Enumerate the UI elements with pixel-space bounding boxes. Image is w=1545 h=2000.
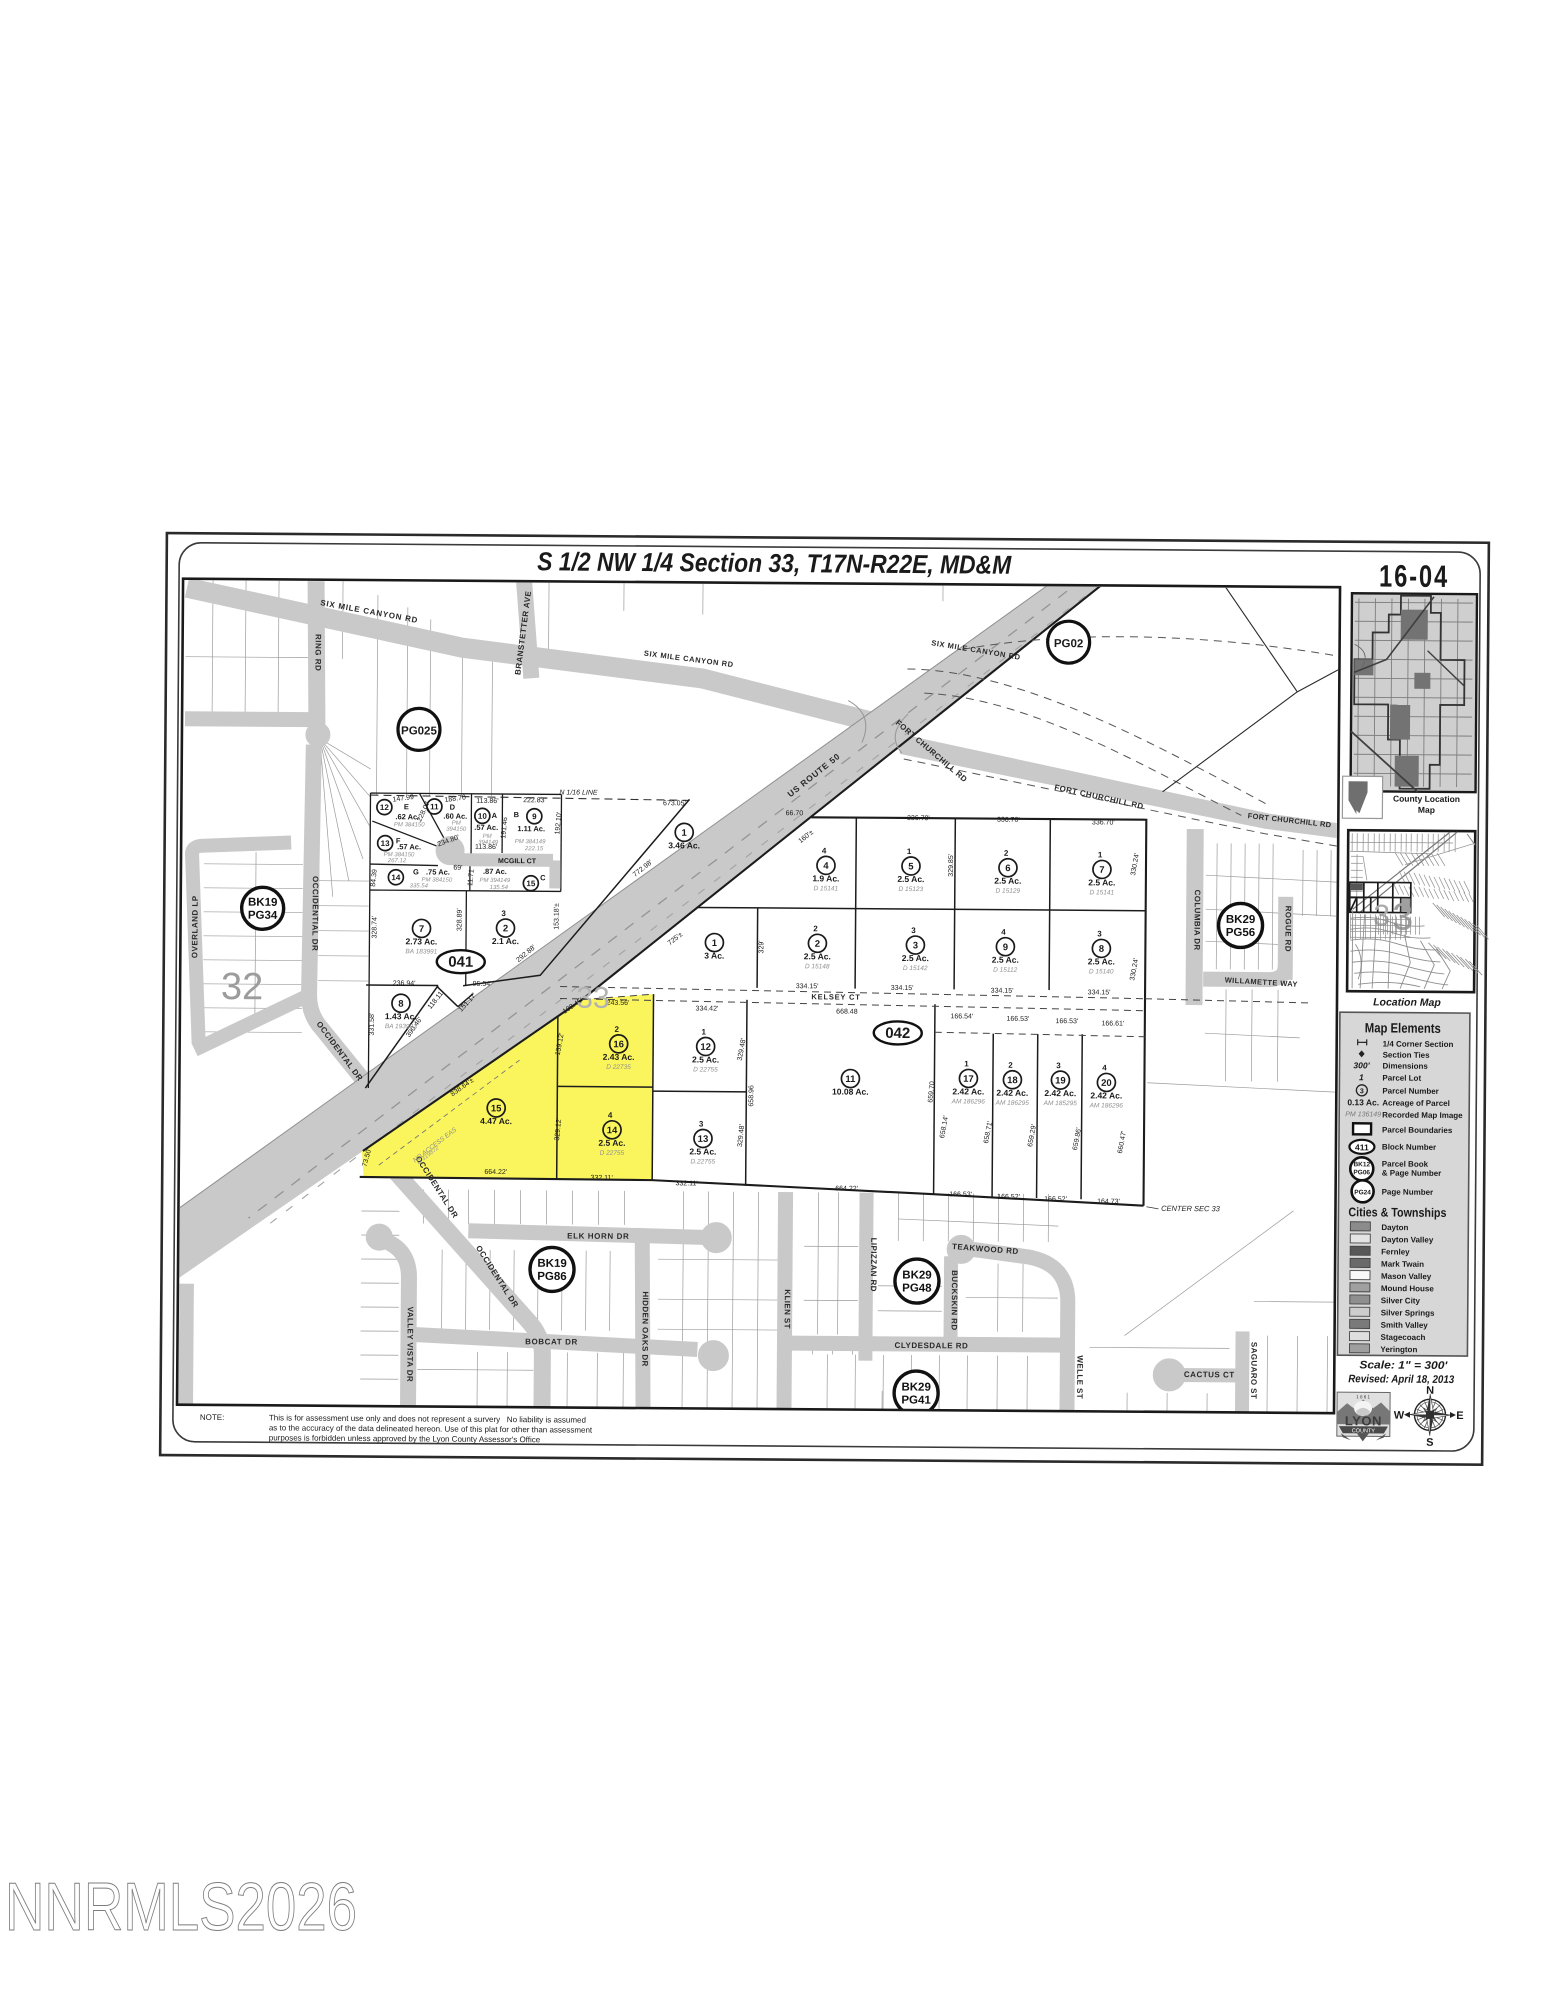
svg-text:BK19: BK19 [248, 897, 277, 909]
svg-text:8: 8 [398, 999, 403, 1010]
svg-text:2: 2 [503, 923, 508, 934]
svg-text:Location Map: Location Map [1373, 996, 1441, 1009]
svg-text:BK12: BK12 [1353, 1161, 1370, 1168]
svg-text:13: 13 [698, 1134, 709, 1145]
svg-text:334.42': 334.42' [696, 1005, 719, 1012]
svg-text:1: 1 [682, 828, 688, 839]
svg-text:335.54: 335.54 [410, 883, 429, 889]
svg-text:2.42 Ac.: 2.42 Ac. [1090, 1090, 1122, 1100]
svg-text:Section Ties: Section Ties [1383, 1050, 1431, 1059]
svg-text:Acreage of Parcel: Acreage of Parcel [1382, 1098, 1450, 1107]
svg-text:D 15129: D 15129 [995, 888, 1020, 895]
svg-text:2.42 Ac.: 2.42 Ac. [952, 1086, 984, 1096]
svg-text:Mason Valley: Mason Valley [1381, 1272, 1432, 1281]
svg-text:135.54: 135.54 [490, 885, 509, 891]
svg-text:1/4 Corner Section: 1/4 Corner Section [1383, 1039, 1454, 1049]
svg-text:1.9 Ac.: 1.9 Ac. [812, 873, 839, 883]
svg-text:Dimensions: Dimensions [1382, 1061, 1428, 1070]
svg-text:1.43 Ac.: 1.43 Ac. [385, 1011, 417, 1021]
svg-text:D 15123: D 15123 [898, 886, 923, 893]
svg-text:AM 186295: AM 186295 [995, 1100, 1030, 1107]
svg-text:3: 3 [1392, 897, 1413, 939]
svg-text:166.52': 166.52' [997, 1194, 1020, 1201]
svg-text:RING RD: RING RD [313, 634, 322, 671]
svg-text:329': 329' [758, 940, 765, 953]
svg-text:3: 3 [699, 1119, 704, 1128]
svg-text:D.22755: D.22755 [690, 1158, 715, 1165]
svg-text:13: 13 [381, 839, 391, 848]
svg-text:9: 9 [1003, 942, 1008, 953]
svg-text:3.46 Ac.: 3.46 Ac. [668, 840, 700, 850]
svg-text:334.15': 334.15' [796, 983, 819, 990]
svg-text:PG02: PG02 [1054, 638, 1084, 650]
svg-text:332.11': 332.11' [591, 1175, 613, 1182]
svg-text:328.74': 328.74' [371, 916, 378, 939]
svg-text:Fernley: Fernley [1381, 1247, 1410, 1256]
svg-text:E: E [404, 802, 409, 811]
svg-text:4: 4 [822, 846, 827, 855]
svg-text:HIDDEN OAKS DR: HIDDEN OAKS DR [640, 1291, 650, 1366]
svg-text:334.15': 334.15' [1088, 989, 1111, 996]
svg-text:Parcel Number: Parcel Number [1382, 1086, 1439, 1095]
svg-text:664.22': 664.22' [484, 1169, 507, 1176]
svg-text:7: 7 [1099, 865, 1104, 876]
svg-text:2: 2 [813, 924, 818, 933]
svg-text:10: 10 [478, 812, 488, 821]
svg-text:& Page Number: & Page Number [1382, 1168, 1442, 1177]
svg-text:Cities & Townships: Cities & Townships [1348, 1205, 1446, 1220]
svg-text:15: 15 [526, 879, 536, 888]
svg-text:2.5 Ac.: 2.5 Ac. [689, 1146, 716, 1156]
svg-text:3 Ac.: 3 Ac. [704, 951, 724, 961]
svg-text:PG06: PG06 [1353, 1169, 1370, 1176]
svg-text:166.53': 166.53' [1006, 1016, 1029, 1023]
svg-text:20: 20 [1101, 1078, 1112, 1089]
svg-text:69': 69' [453, 865, 462, 872]
svg-text:4.47 Ac.: 4.47 Ac. [480, 1116, 512, 1126]
svg-text:17: 17 [963, 1074, 974, 1085]
svg-text:D 15141: D 15141 [1089, 889, 1114, 896]
svg-text:PG86: PG86 [537, 1271, 567, 1283]
svg-text:1: 1 [702, 1027, 707, 1036]
svg-text:334.15': 334.15' [891, 985, 914, 992]
svg-text:D 15148: D 15148 [805, 963, 830, 970]
svg-text:11: 11 [430, 802, 439, 811]
svg-text:8: 8 [1099, 944, 1104, 955]
svg-text:394149: 394149 [478, 840, 499, 846]
svg-text:11: 11 [845, 1074, 856, 1085]
svg-text:166.54': 166.54' [950, 1013, 973, 1020]
svg-text:18: 18 [1007, 1075, 1018, 1086]
svg-text:113.86': 113.86' [476, 798, 498, 805]
svg-text:14: 14 [391, 873, 401, 882]
svg-text:332.11': 332.11' [676, 1180, 698, 1187]
svg-text:.57 Ac.: .57 Ac. [474, 823, 498, 832]
svg-text:12: 12 [700, 1042, 711, 1053]
svg-text:16: 16 [613, 1039, 624, 1050]
svg-text:3: 3 [1056, 1061, 1061, 1070]
svg-text:.57 Ac.: .57 Ac. [397, 842, 421, 851]
svg-text:3: 3 [1360, 1088, 1364, 1095]
svg-text:2.5 Ac.: 2.5 Ac. [1088, 956, 1115, 966]
svg-text:166.53': 166.53' [949, 1191, 972, 1198]
svg-text:Parcel Book: Parcel Book [1382, 1159, 1429, 1168]
svg-text:PG56: PG56 [1226, 927, 1256, 939]
svg-text:Block Number: Block Number [1382, 1142, 1436, 1151]
svg-text:3: 3 [1097, 929, 1102, 938]
svg-text:CLYDESDALE RD: CLYDESDALE RD [895, 1341, 969, 1351]
svg-text:County Location: County Location [1393, 794, 1460, 804]
svg-text:95.54': 95.54' [473, 981, 492, 988]
svg-text:4: 4 [823, 861, 829, 872]
svg-text:BOBCAT DR: BOBCAT DR [525, 1337, 578, 1346]
svg-text:16-04: 16-04 [1379, 558, 1449, 594]
svg-text:LIPIZZAN RD: LIPIZZAN RD [869, 1238, 878, 1292]
svg-text:PG24: PG24 [1354, 1189, 1371, 1196]
svg-text:ELK HORN DR: ELK HORN DR [567, 1232, 629, 1241]
svg-text:3: 3 [911, 926, 916, 935]
svg-text:1: 1 [712, 938, 718, 949]
svg-text:D 22735: D 22735 [606, 1064, 631, 1071]
svg-text:D 15141: D 15141 [814, 885, 839, 892]
svg-text:PG34: PG34 [248, 910, 278, 922]
svg-text:Mark Twain: Mark Twain [1381, 1260, 1424, 1269]
svg-text:9: 9 [532, 812, 537, 821]
svg-text:15: 15 [491, 1103, 502, 1114]
svg-text:W: W [1394, 1410, 1405, 1422]
svg-text:Page Number: Page Number [1382, 1187, 1434, 1196]
svg-text:1 8 6 1: 1 8 6 1 [1356, 1394, 1370, 1399]
svg-text:D 15140: D 15140 [1089, 968, 1114, 975]
svg-text:Mound House: Mound House [1381, 1284, 1434, 1293]
svg-text:BK29: BK29 [901, 1381, 930, 1393]
svg-text:336.70': 336.70' [997, 817, 1020, 824]
svg-text:BK29: BK29 [902, 1269, 931, 1281]
svg-text:.60 Ac.: .60 Ac. [443, 812, 467, 821]
svg-text:NOTE:: NOTE: [200, 1413, 225, 1422]
svg-text:KELSEY CT: KELSEY CT [811, 992, 860, 1001]
svg-text:1: 1 [964, 1059, 969, 1068]
svg-text:267.12: 267.12 [387, 858, 407, 864]
svg-text:Yerington: Yerington [1380, 1345, 1417, 1354]
svg-text:BK29: BK29 [1226, 914, 1255, 926]
svg-text:222.83': 222.83' [523, 797, 546, 804]
svg-text:D 22755: D 22755 [600, 1150, 625, 1157]
svg-text:673.05': 673.05' [663, 800, 686, 807]
svg-text:Map: Map [1418, 805, 1435, 815]
svg-text:1: 1 [907, 847, 912, 856]
svg-text:4: 4 [608, 1111, 613, 1120]
svg-text:6: 6 [1005, 863, 1010, 874]
svg-text:CACTUS CT: CACTUS CT [1184, 1370, 1235, 1379]
svg-text:VALLEY VISTA DR: VALLEY VISTA DR [405, 1307, 415, 1383]
svg-text:2.5 Ac.: 2.5 Ac. [897, 874, 924, 884]
svg-text:G: G [413, 867, 419, 876]
svg-text:7: 7 [419, 924, 424, 935]
svg-text:MCGILL CT: MCGILL CT [498, 858, 537, 865]
svg-text:ROGUE RD: ROGUE RD [1283, 906, 1292, 952]
svg-text:SAGUARO ST: SAGUARO ST [1249, 1342, 1258, 1399]
svg-text:2.5 Ac.: 2.5 Ac. [804, 951, 831, 961]
svg-text:Parcel Lot: Parcel Lot [1382, 1073, 1421, 1082]
svg-text:411: 411 [1355, 1142, 1369, 1152]
svg-text:OVERLAND LP: OVERLAND LP [190, 895, 199, 958]
svg-text:236.94': 236.94' [393, 980, 416, 987]
svg-text:Dayton Valley: Dayton Valley [1381, 1235, 1434, 1244]
svg-text:153.18'±: 153.18'± [554, 903, 561, 930]
svg-text:664.22': 664.22' [835, 1185, 858, 1192]
svg-text:CENTER SEC 33: CENTER SEC 33 [1161, 1204, 1221, 1213]
svg-text:3: 3 [913, 940, 918, 951]
svg-text:331.58': 331.58' [369, 1013, 376, 1036]
svg-text:66.70: 66.70 [786, 810, 804, 817]
svg-text:AM 185295: AM 185295 [1043, 1100, 1078, 1107]
svg-text:166.53': 166.53' [1055, 1018, 1078, 1025]
svg-text:243.56': 243.56' [607, 1000, 630, 1007]
svg-text:S: S [1426, 1437, 1433, 1449]
svg-text:1: 1 [1359, 1072, 1364, 1082]
svg-text:334.15': 334.15' [991, 988, 1014, 995]
svg-text:Revised: April 18, 2013: Revised: April 18, 2013 [1348, 1373, 1454, 1386]
svg-text:WELLE ST: WELLE ST [1075, 1355, 1084, 1399]
svg-text:PM 136149: PM 136149 [1345, 1111, 1381, 1118]
svg-text:BK19: BK19 [537, 1258, 566, 1270]
svg-text:Stagecoach: Stagecoach [1381, 1333, 1426, 1342]
svg-text:AM 186296: AM 186296 [951, 1098, 986, 1105]
svg-text:2.5 Ac.: 2.5 Ac. [992, 955, 1019, 965]
svg-text:A: A [492, 811, 498, 820]
svg-text:PM 384149: PM 384149 [515, 839, 546, 845]
svg-text:Silver City: Silver City [1381, 1296, 1421, 1305]
svg-text:2.42 Ac.: 2.42 Ac. [1044, 1088, 1076, 1098]
svg-text:Scale: 1" = 300': Scale: 1" = 300' [1359, 1359, 1447, 1372]
svg-text:2: 2 [815, 939, 820, 950]
svg-text:D 15112: D 15112 [993, 967, 1018, 974]
svg-text:2: 2 [1008, 1061, 1013, 1070]
svg-text:BUCKSKIN RD: BUCKSKIN RD [950, 1270, 959, 1330]
svg-text:COLUMBIA DR: COLUMBIA DR [1192, 890, 1201, 951]
svg-text:33: 33 [576, 982, 610, 1015]
svg-text:14: 14 [607, 1125, 618, 1136]
svg-text:4: 4 [1001, 928, 1006, 937]
svg-text:2: 2 [1004, 849, 1009, 858]
svg-text:5: 5 [908, 861, 914, 872]
svg-text:PG48: PG48 [902, 1282, 932, 1294]
svg-text:2.5 Ac.: 2.5 Ac. [598, 1138, 625, 1148]
svg-text:394150: 394150 [446, 827, 467, 833]
svg-text:KLIEN ST: KLIEN ST [783, 1289, 792, 1329]
svg-text:NNRMLS2026: NNRMLS2026 [5, 1869, 357, 1945]
svg-text:Map Elements: Map Elements [1365, 1020, 1441, 1036]
svg-text:N 1/16 LINE: N 1/16 LINE [559, 789, 598, 796]
svg-text:C: C [540, 873, 546, 882]
svg-text:166.52': 166.52' [1044, 1196, 1067, 1203]
svg-text:041: 041 [448, 954, 473, 971]
svg-text:Smith Valley: Smith Valley [1381, 1321, 1429, 1330]
svg-text:166.61': 166.61' [1101, 1020, 1124, 1027]
svg-text:PM 394149: PM 394149 [479, 878, 510, 884]
svg-text:1: 1 [1098, 850, 1103, 859]
svg-text:Parcel Boundaries: Parcel Boundaries [1382, 1125, 1453, 1135]
svg-text:2.42 Ac.: 2.42 Ac. [996, 1088, 1028, 1098]
svg-text:222.15: 222.15 [524, 846, 544, 852]
svg-text:Dayton: Dayton [1381, 1223, 1408, 1232]
svg-text:4: 4 [1102, 1063, 1107, 1072]
svg-text:328.89': 328.89' [456, 908, 463, 931]
svg-text:2.5 Ac.: 2.5 Ac. [994, 876, 1021, 886]
svg-text:BA 183991: BA 183991 [405, 948, 437, 955]
svg-text:2.73 Ac.: 2.73 Ac. [405, 936, 437, 946]
svg-text:.75 Ac.: .75 Ac. [426, 867, 450, 876]
svg-text:AM 186296: AM 186296 [1089, 1102, 1124, 1109]
svg-text:.62 Ac.: .62 Ac. [395, 812, 419, 821]
svg-text:2.5 Ac.: 2.5 Ac. [902, 953, 929, 963]
svg-text:32: 32 [221, 966, 264, 1008]
svg-text:336.70': 336.70' [1092, 819, 1115, 826]
svg-text:3: 3 [501, 909, 506, 918]
svg-text:1.11 Ac.: 1.11 Ac. [517, 824, 545, 833]
svg-text:12: 12 [380, 803, 390, 812]
svg-text:S 1/2 NW 1/4 Section 33, T17N-: S 1/2 NW 1/4 Section 33, T17N-R22E, MD&M [537, 546, 1012, 579]
svg-text:B: B [514, 810, 520, 819]
svg-text:10.08 Ac.: 10.08 Ac. [832, 1086, 869, 1096]
svg-text:2.43 Ac.: 2.43 Ac. [603, 1052, 635, 1062]
svg-text:042: 042 [885, 1025, 910, 1042]
svg-text:D 22755: D 22755 [693, 1066, 718, 1073]
svg-text:OCCIDENTIAL DR: OCCIDENTIAL DR [310, 876, 320, 951]
svg-text:BA 193991: BA 193991 [385, 1023, 417, 1030]
svg-text:D: D [450, 803, 456, 812]
svg-text:164.73': 164.73' [1097, 1198, 1120, 1205]
svg-text:19: 19 [1055, 1075, 1066, 1086]
svg-text:D 15142: D 15142 [903, 965, 928, 972]
svg-text:300': 300' [1353, 1060, 1370, 1070]
svg-text:2.1 Ac.: 2.1 Ac. [492, 936, 519, 946]
svg-text:2.5 Ac.: 2.5 Ac. [1088, 877, 1115, 887]
svg-text:PG41: PG41 [901, 1394, 931, 1406]
svg-text:E: E [1456, 1410, 1463, 1422]
svg-text:0.13 Ac.: 0.13 Ac. [1347, 1097, 1379, 1107]
svg-text:668.48: 668.48 [836, 1008, 858, 1015]
svg-text:Recorded Map Image: Recorded Map Image [1382, 1110, 1463, 1120]
svg-text:PG025: PG025 [401, 725, 437, 737]
svg-text:336.70': 336.70' [907, 815, 930, 822]
svg-text:329.85': 329.85' [948, 854, 955, 877]
svg-text:2.5 Ac.: 2.5 Ac. [692, 1054, 719, 1064]
svg-text:658.96: 658.96 [748, 1085, 755, 1107]
svg-text:Silver Springs: Silver Springs [1381, 1308, 1435, 1317]
svg-text:N: N [1426, 1385, 1434, 1397]
svg-text:PM 384150: PM 384150 [394, 822, 425, 828]
svg-text:2: 2 [615, 1025, 620, 1034]
svg-text:.87 Ac.: .87 Ac. [483, 867, 507, 876]
svg-text:LYON: LYON [1345, 1413, 1382, 1428]
